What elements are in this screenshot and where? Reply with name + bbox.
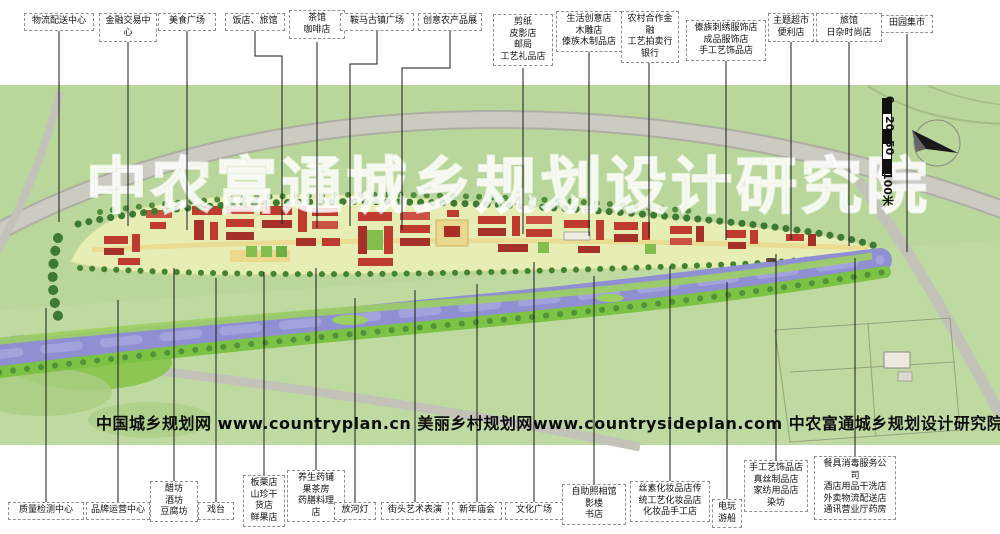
map-label-photo-studio-bookstore: 自助照相馆 影楼 书店	[562, 484, 626, 525]
map-label-logistics-center: 物流配送中心	[24, 13, 94, 31]
map-label-chestnut-dried-goods-shops: 板栗店 山珍干 货店 鲜果店	[243, 475, 285, 527]
map-label-handicraft-silk-shops: 手工艺饰品店 真丝制品店 家纺用品店 染坊	[744, 460, 808, 512]
map-label-ancient-town-plaza: 鞍马古镇广场	[340, 13, 414, 31]
map-label-vinegar-wine-tofu-workshops: 醋坊 酒坊 豆腐坊	[150, 481, 198, 522]
map-label-dai-embroidery-shops: 傣族刺绣服饰店 成品服饰店 手工艺饰品店	[686, 20, 766, 61]
scale-bar	[882, 98, 892, 176]
map-label-silk-cosmetics-shops: 丝素化妆品店传 统工艺化妆品店 化妆品手工店	[630, 481, 710, 522]
map-label-restaurant-hotel: 饭店、旅馆	[225, 13, 285, 31]
map-label-tableware-disinfect-services: 餐具消毒服务公 司 酒店用品干洗店 外卖物流配送店 通讯营业厅药房	[814, 456, 896, 520]
scale-tick-100: 100米	[880, 172, 896, 206]
scale-tick-20: 20	[883, 116, 896, 131]
map-label-finance-trade-center: 金融交易中心	[99, 13, 157, 42]
map-label-teahouse-cafe: 茶馆 咖啡店	[289, 10, 345, 39]
map-label-rural-finance-bank: 农村合作金融 工艺拍卖行 银行	[621, 11, 679, 63]
map-label-brand-operation-center: 品牌运营中心	[86, 502, 150, 520]
planning-map-canvas: 中农富通城乡规划设计研究院	[0, 0, 1000, 534]
map-label-opera-stage: 戏台	[198, 502, 234, 520]
map-label-river-lanterns: 放河灯	[334, 502, 376, 520]
map-label-creative-agri-expo: 创意农产品展	[418, 13, 482, 31]
site-plan-artwork	[0, 0, 1000, 534]
map-label-arcade-boats: 电玩 游船	[712, 499, 742, 528]
map-label-culture-plaza: 文化广场	[505, 502, 563, 520]
credit-line: 中国城乡规划网 www.countryplan.cn 美丽乡村规划网www.co…	[96, 410, 956, 434]
map-label-quality-inspection-center: 质量检测中心	[8, 502, 84, 520]
map-label-hotel-daily-fashion: 旅馆 日杂时尚店	[816, 13, 882, 42]
map-label-street-art-performance: 街头艺术表演	[381, 502, 449, 520]
map-label-papercut-shadow-shops: 剪纸 皮影店 邮局 工艺礼品店	[493, 14, 553, 66]
map-label-theme-supermarket: 主题超市 便利店	[768, 13, 814, 42]
map-label-countryside-market: 田园集市	[881, 15, 933, 33]
map-label-new-year-temple-fair: 新年庙会	[452, 502, 502, 520]
map-label-food-plaza: 美食广场	[158, 13, 216, 31]
scale-tick-50: 50	[883, 140, 896, 155]
map-label-life-creative-shops: 生活创意店 木雕店 傣族木制品店	[556, 11, 622, 52]
scale-tick-0: 0	[883, 96, 896, 104]
